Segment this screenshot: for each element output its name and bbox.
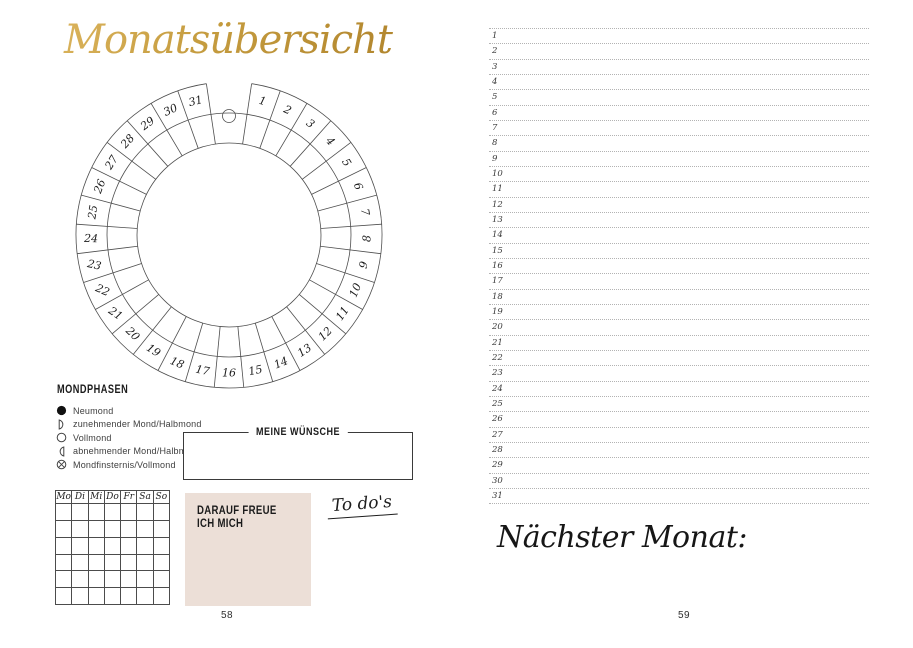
legend-item: Neumond [56,404,202,417]
wheel-day-number: 1 [257,94,267,108]
day-line-row[interactable]: 29 [489,458,869,473]
calendar-empty-cell[interactable] [56,588,72,605]
day-line-row[interactable]: 30 [489,474,869,489]
day-line-number: 3 [489,62,506,72]
day-line-row[interactable]: 23 [489,366,869,381]
day-line-row[interactable]: 9 [489,152,869,167]
wheel-day-number: 28 [117,132,137,152]
calendar-empty-cell[interactable] [56,555,72,572]
legend-label: Mondfinsternis/Vollmond [73,460,176,470]
day-line-row[interactable]: 19 [489,305,869,320]
wheel-day-number: 30 [161,101,179,119]
calendar-empty-cell[interactable] [89,588,105,605]
calendar-empty-cell[interactable] [72,555,88,572]
calendar-empty-cell[interactable] [89,555,105,572]
day-line-number: 21 [489,338,506,348]
calendar-empty-cell[interactable] [154,521,170,538]
calendar-empty-cell[interactable] [154,571,170,588]
day-line-row[interactable]: 8 [489,136,869,151]
day-line-row[interactable]: 20 [489,320,869,335]
waning-half-moon-icon [56,446,67,457]
my-wishes-box[interactable]: MEINE WÜNSCHE [183,432,413,480]
wheel-day-number: 20 [122,324,142,344]
day-line-row[interactable]: 27 [489,428,869,443]
calendar-empty-cell[interactable] [154,538,170,555]
day-line-row[interactable]: 26 [489,412,869,427]
wheel-day-number: 23 [85,257,102,273]
calendar-empty-cell[interactable] [137,555,153,572]
day-line-number: 1 [489,31,506,41]
calendar-empty-cell[interactable] [105,555,121,572]
calendar-empty-cell[interactable] [105,588,121,605]
day-line-number: 28 [489,445,506,455]
calendar-empty-cell[interactable] [89,538,105,555]
weekday-header-cell: So [154,491,170,504]
day-line-row[interactable]: 5 [489,90,869,105]
moon-phases-heading: MONDPHASEN [57,384,128,396]
calendar-empty-cell[interactable] [121,538,137,555]
new-moon-icon [56,405,67,416]
day-line-number: 7 [489,123,506,133]
calendar-empty-cell[interactable] [72,538,88,555]
calendar-empty-cell[interactable] [121,504,137,521]
full-moon-icon [56,432,67,443]
day-line-number: 18 [489,292,506,302]
calendar-empty-cell[interactable] [72,571,88,588]
calendar-empty-cell[interactable] [121,521,137,538]
day-line-number: 13 [489,215,506,225]
calendar-empty-cell[interactable] [105,571,121,588]
weekday-header-cell: Do [105,491,121,504]
calendar-empty-cell[interactable] [154,555,170,572]
day-line-number: 23 [489,368,506,378]
day-line-row[interactable]: 14 [489,228,869,243]
day-line-number: 9 [489,154,506,164]
calendar-empty-cell[interactable] [154,504,170,521]
wheel-day-number: 5 [339,156,354,169]
wheel-day-number: 17 [194,363,210,378]
day-line-number: 24 [489,384,506,394]
day-line-number: 15 [489,246,506,256]
day-line-number: 22 [489,353,506,363]
looking-forward-box[interactable]: DARAUF FREUE ICH MICH [185,493,311,606]
weekday-header-cell: Di [72,491,88,504]
day-line-number: 12 [489,200,506,210]
day-line-number: 27 [489,430,506,440]
legend-item: zunehmender Mond/Halbmond [56,418,202,431]
wheel-day-number: 19 [144,341,163,360]
day-line-row[interactable]: 18 [489,290,869,305]
day-line-row[interactable]: 16 [489,259,869,274]
day-line-number: 29 [489,460,506,470]
monthly-calendar-wheel: 1234567891011121314151617181920212223242… [74,79,384,396]
calendar-empty-cell[interactable] [121,571,137,588]
legend-label: zunehmender Mond/Halbmond [73,419,202,429]
weekday-header-cell: Mo [56,491,72,504]
day-line-number: 8 [489,138,506,148]
calendar-empty-cell[interactable] [121,588,137,605]
day-line-row[interactable]: 3 [489,60,869,75]
wheel-day-number: 8 [360,235,373,242]
weekday-header-cell: Mi [89,491,105,504]
day-line-number: 16 [489,261,506,271]
day-line-row[interactable]: 13 [489,213,869,228]
page-number-left: 58 [207,610,247,621]
day-line-number: 26 [489,414,506,424]
day-line-number: 10 [489,169,506,179]
day-line-row[interactable]: 2 [489,44,869,59]
wheel-day-number: 3 [304,116,317,131]
calendar-empty-cell[interactable] [137,588,153,605]
legend-label: Vollmond [73,433,112,443]
wheel-day-number: 10 [347,281,365,299]
calendar-empty-cell[interactable] [121,555,137,572]
day-line-number: 20 [489,322,506,332]
wheel-day-number: 12 [316,324,335,343]
day-line-number: 19 [489,307,506,317]
moon-phases-legend: Neumondzunehmender Mond/HalbmondVollmond… [56,404,202,472]
day-line-number: 6 [489,108,506,118]
todos-label: To do's [326,492,397,520]
calendar-empty-cell[interactable] [137,504,153,521]
day-line-row[interactable]: 4 [489,75,869,90]
day-line-number: 31 [489,491,506,501]
day-line-number: 25 [489,399,506,409]
legend-item: Vollmond [56,431,202,444]
calendar-empty-cell[interactable] [56,571,72,588]
calendar-empty-cell[interactable] [89,521,105,538]
day-line-row[interactable]: 6 [489,106,869,121]
wheel-day-number: 25 [85,204,100,221]
wheel-day-number: 13 [295,341,314,360]
day-line-row[interactable]: 22 [489,351,869,366]
calendar-empty-cell[interactable] [89,571,105,588]
day-line-row[interactable]: 25 [489,397,869,412]
day-line-row[interactable]: 10 [489,167,869,182]
waxing-half-moon-icon [56,419,67,430]
wheel-day-number: 2 [281,102,294,117]
day-line-number: 2 [489,46,506,56]
wheel-day-number: 14 [272,354,290,371]
calendar-empty-cell[interactable] [137,521,153,538]
wheel-day-number: 31 [187,93,204,109]
calendar-wheel-graphic: 1234567891011121314151617181920212223242… [74,79,384,391]
day-line-row[interactable]: 7 [489,121,869,136]
calendar-empty-cell[interactable] [56,521,72,538]
wheel-day-number: 9 [357,260,371,270]
day-line-row[interactable]: 28 [489,443,869,458]
next-month-label: Nächster Monat: [497,520,747,555]
wheel-day-number: 11 [333,304,352,323]
day-line-row[interactable]: 11 [489,182,869,197]
my-wishes-title: MEINE WÜNSCHE [249,426,348,438]
day-line-row[interactable]: 1 [489,29,869,44]
calendar-empty-cell[interactable] [137,571,153,588]
calendar-empty-cell[interactable] [56,538,72,555]
calendar-empty-cell[interactable] [72,521,88,538]
day-line-number: 17 [489,276,506,286]
day-line-number: 14 [489,230,506,240]
day-line-number: 5 [489,92,506,102]
day-line-row[interactable]: 12 [489,198,869,213]
page-number-right: 59 [664,610,704,621]
calendar-empty-cell[interactable] [137,538,153,555]
day-line-row[interactable]: 31 [489,489,869,504]
calendar-empty-cell[interactable] [105,521,121,538]
wheel-day-number: 16 [222,367,236,380]
day-line-number: 4 [489,77,506,87]
wheel-day-number: 22 [93,281,112,299]
legend-item: abnehmender Mond/Halbmond [56,445,202,458]
wheel-day-number: 27 [102,153,121,173]
weekday-header-cell: Sa [137,491,153,504]
calendar-empty-cell[interactable] [105,538,121,555]
calendar-empty-cell[interactable] [154,588,170,605]
calendar-empty-cell[interactable] [72,588,88,605]
day-line-row[interactable]: 15 [489,244,869,259]
legend-item: Mondfinsternis/Vollmond [56,458,202,471]
calendar-empty-cell[interactable] [72,504,88,521]
day-line-number: 30 [489,476,506,486]
day-line-row[interactable]: 21 [489,336,869,351]
calendar-empty-cell[interactable] [89,504,105,521]
lunar-eclipse-icon [56,459,67,470]
calendar-empty-cell[interactable] [56,504,72,521]
weekday-header-cell: Fr [121,491,137,504]
wheel-day-number: 15 [247,363,263,378]
calendar-empty-cell[interactable] [105,504,121,521]
wheel-day-number: 21 [105,304,125,323]
looking-forward-label: DARAUF FREUE ICH MICH [197,504,277,530]
wheel-day-number: 29 [137,114,157,133]
wheel-day-number: 18 [168,354,186,371]
wheel-day-number: 7 [358,207,372,216]
wheel-day-number: 4 [322,134,337,149]
day-line-number: 11 [489,184,506,194]
wheel-day-number: 24 [83,232,98,245]
daily-lines-list: 1234567891011121314151617181920212223242… [489,28,869,504]
weekday-mini-table[interactable]: MoDiMiDoFrSaSo [55,490,170,605]
wheel-day-number: 26 [91,178,108,197]
day-line-row[interactable]: 24 [489,382,869,397]
day-line-row[interactable]: 17 [489,274,869,289]
legend-label: Neumond [73,406,113,416]
page-title: Monatsübersicht [0,16,456,64]
wheel-day-number: 6 [351,181,366,192]
